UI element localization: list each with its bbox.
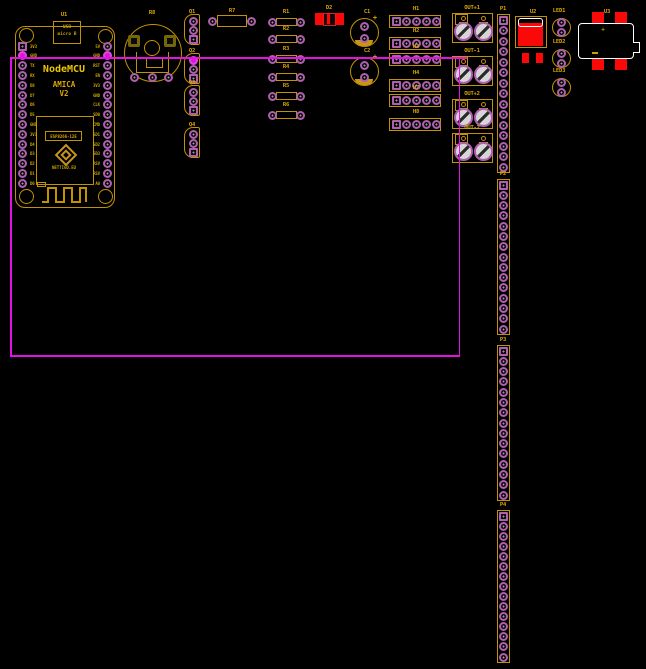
resistor-pad-R7[interactable]	[208, 17, 217, 26]
pin-strip-pad-P4[interactable]	[499, 582, 508, 591]
regulator-tab-outline	[518, 18, 543, 27]
nodemcu-pin-left-D0[interactable]	[18, 179, 27, 188]
pin-strip-pad-P1[interactable]	[499, 100, 508, 109]
resistor-ref-label-R5[interactable]: R5	[283, 83, 289, 89]
header-ref-label-H7[interactable]: H7	[413, 85, 419, 91]
nodemcu-pin-label-left-TX: TX	[30, 63, 35, 68]
terminal-ref-label-OUT-2[interactable]: OUT-2	[464, 125, 480, 131]
nodemcu-pin-right-SD0[interactable]	[103, 110, 112, 119]
pin-strip-pad-P2[interactable]	[499, 181, 508, 190]
pin-strip-ref-label-P4[interactable]: P4	[500, 502, 506, 508]
nodemcu-pin-label-right-A0: A0	[71, 181, 100, 186]
module-ref-label[interactable]: U3	[604, 9, 610, 15]
terminal-clamp-icon-OUT+2	[481, 102, 486, 107]
pin-strip-pad-P4[interactable]	[499, 572, 508, 581]
pin-strip-pad-P3[interactable]	[499, 398, 508, 407]
nodemcu-pin-label-left-3V3: 3V3	[30, 44, 37, 49]
resistor-ref-label-R4[interactable]: R4	[283, 64, 289, 70]
nodemcu-ref-label[interactable]: U1	[61, 12, 67, 18]
transistor-ref-label-Q1[interactable]: Q1	[189, 9, 195, 15]
header-pad-H1[interactable]	[392, 17, 401, 26]
pin-strip-pad-P3[interactable]	[499, 419, 508, 428]
transistor-pad-Q1[interactable]	[189, 17, 198, 26]
pin-strip-pad-P2[interactable]	[499, 304, 508, 313]
module-body-outline[interactable]	[578, 23, 634, 59]
module-polarity-mark: +	[601, 27, 605, 34]
terminal-clamp-icon-OUT-2	[481, 136, 486, 141]
regulator-ref-label[interactable]: U2	[530, 9, 536, 15]
terminal-clamp-icon-OUT+1	[481, 16, 486, 21]
nodemcu-pin-label-right-RSV: RSV	[71, 171, 100, 176]
pin-strip-pad-P4[interactable]	[499, 522, 508, 531]
nodemcu-pin-left-GND[interactable]	[18, 51, 27, 60]
transistor-pad-Q4[interactable]	[189, 130, 198, 139]
nodemcu-pin-label-left-D3: D3	[30, 151, 35, 156]
header-ref-label-H2[interactable]: H2	[413, 28, 419, 34]
transistor-ref-label-Q4[interactable]: Q4	[189, 122, 195, 128]
pin-strip-pad-P2[interactable]	[499, 325, 508, 334]
resistor-pad-R3[interactable]	[268, 55, 277, 64]
pin-strip-pad-P1[interactable]	[499, 37, 508, 46]
nodemcu-pin-left-D6[interactable]	[18, 100, 27, 109]
transistor-pad-Q4[interactable]	[189, 139, 198, 148]
led-pad-LED3[interactable]	[557, 88, 566, 97]
terminal-clamp-icon-OUT-2	[461, 136, 466, 141]
pin-strip-pad-P1[interactable]	[499, 121, 508, 130]
nodemcu-pin-right-RSV[interactable]	[103, 159, 112, 168]
transistor-ref-label-Q2[interactable]: Q2	[189, 48, 195, 54]
pin-strip-pad-P1[interactable]	[499, 47, 508, 56]
pin-strip-pad-P3[interactable]	[499, 388, 508, 397]
potentiometer-pin-pad[interactable]	[130, 73, 139, 82]
resistor-pad-R1[interactable]	[296, 18, 305, 27]
nodemcu-pin-right-5V[interactable]	[103, 42, 112, 51]
pin-strip-pad-P1[interactable]	[499, 152, 508, 161]
nodemcu-pin-label-right-CLK: CLK	[71, 102, 100, 107]
resistor-body-R4[interactable]	[276, 73, 297, 81]
terminal-screw-pad-OUT-1[interactable]	[454, 65, 473, 84]
pin-strip-pad-P1[interactable]	[499, 58, 508, 67]
nodemcu-pin-left-D1[interactable]	[18, 169, 27, 178]
nodemcu-pin-label-right-3V3: 3V3	[71, 83, 100, 88]
led-pad-LED1[interactable]	[557, 28, 566, 37]
nodemcu-pin-label-left-D2: D2	[30, 161, 35, 166]
pin-strip-pad-P3[interactable]	[499, 357, 508, 366]
terminal-screw-pad-OUT+2[interactable]	[474, 108, 493, 127]
nodemcu-pin-label-left-D7: D7	[30, 93, 35, 98]
nodemcu-pin-left-D5[interactable]	[18, 110, 27, 119]
header-pad-H4[interactable]	[402, 81, 411, 90]
header-pad-H7[interactable]	[412, 96, 421, 105]
pin-strip-pad-P1[interactable]	[499, 16, 508, 25]
nodemcu-pin-label-left-3V3: 3V3	[30, 132, 37, 137]
resistor-pad-R1[interactable]	[268, 18, 277, 27]
module-pad[interactable]	[592, 59, 604, 70]
resistor-ref-label-R6[interactable]: R6	[283, 102, 289, 108]
pin-strip-pad-P2[interactable]	[499, 201, 508, 210]
module-pad[interactable]	[592, 12, 604, 23]
resistor-pad-R7[interactable]	[247, 17, 256, 26]
resistor-pad-R6[interactable]	[296, 111, 305, 120]
nodemcu-pin-left-D2[interactable]	[18, 159, 27, 168]
module-pad[interactable]	[615, 59, 627, 70]
header-pad-H1[interactable]	[412, 17, 421, 26]
pin-strip-pad-P2[interactable]	[499, 273, 508, 282]
pin-strip-pad-P1[interactable]	[499, 26, 508, 35]
mounting-hole	[19, 28, 34, 43]
resistor-body-R1[interactable]	[276, 18, 297, 26]
terminal-ref-label-OUT+1[interactable]: OUT+1	[464, 5, 480, 11]
nodemcu-pin-right-RST[interactable]	[103, 61, 112, 70]
resistor-pad-R2[interactable]	[296, 35, 305, 44]
nodemcu-subtitle-v2: V2	[59, 89, 68, 98]
resistor-pad-R2[interactable]	[268, 35, 277, 44]
nodemcu-pin-label-right-RSV: RSV	[71, 161, 100, 166]
nodemcu-pin-left-TX[interactable]	[18, 61, 27, 70]
header-pad-H8[interactable]	[392, 120, 401, 129]
pin-strip-pad-P1[interactable]	[499, 131, 508, 140]
potentiometer-bracket-slot	[146, 57, 163, 68]
capacitor-pad-C2[interactable]	[360, 61, 369, 70]
nodemcu-pin-label-left-D0: D0	[30, 181, 35, 186]
terminal-screw-pad-OUT+2[interactable]	[454, 108, 473, 127]
nodemcu-pin-label-left-D5: D5	[30, 112, 35, 117]
pin-strip-pad-P3[interactable]	[499, 470, 508, 479]
resistor-ref-label-R2[interactable]: R2	[283, 26, 289, 32]
usb-label-line1: USB	[63, 25, 71, 30]
terminal-clamp-icon-OUT+2	[461, 102, 466, 107]
terminal-screw-pad-OUT+1[interactable]	[454, 22, 473, 41]
nodemcu-pin-left-RX[interactable]	[18, 71, 27, 80]
nodemcu-pin-label-left-GND: GND	[30, 122, 37, 127]
gnd-net-track-top[interactable]	[10, 57, 467, 59]
pin-strip-pad-P2[interactable]	[499, 222, 508, 231]
module-pad[interactable]	[615, 12, 627, 23]
led-ref-label-LED3[interactable]: LED3	[553, 68, 565, 74]
resistor-ref-label-R3[interactable]: R3	[283, 46, 289, 52]
led-pad-LED1[interactable]	[557, 18, 566, 27]
capacitor-pad-C1[interactable]	[360, 34, 369, 43]
nodemcu-pin-label-right-SD0: SD0	[71, 112, 100, 117]
nodemcu-pin-right-CMD[interactable]	[103, 120, 112, 129]
led-pad-LED3[interactable]	[557, 78, 566, 87]
pin-strip-ref-label-P2[interactable]: P2	[500, 171, 506, 177]
nodemcu-pin-label-left-D1: D1	[30, 171, 35, 176]
nodemcu-pin-right-SD1[interactable]	[103, 130, 112, 139]
terminal-clamp-icon-OUT+1	[461, 16, 466, 21]
mounting-hole	[98, 189, 113, 204]
pin-strip-pad-P1[interactable]	[499, 68, 508, 77]
potentiometer-ref-label[interactable]: R8	[149, 10, 155, 16]
nodemcu-pin-label-left-D4: D4	[30, 142, 35, 147]
potentiometer-mount-pad[interactable]	[164, 35, 176, 47]
terminal-screw-pad-OUT-2[interactable]	[474, 142, 493, 161]
nodemcu-pin-label-left-D8: D8	[30, 83, 35, 88]
nodemcu-pin-label-right-5V: 5V	[71, 44, 100, 49]
terminal-ref-label-OUT-1[interactable]: OUT-1	[464, 48, 480, 54]
capacitor-pad-C1[interactable]	[360, 22, 369, 31]
header-ref-label-H4[interactable]: H4	[413, 70, 419, 76]
resistor-pad-R6[interactable]	[268, 111, 277, 120]
header-pad-H8[interactable]	[402, 120, 411, 129]
smd-diode-pad[interactable]	[315, 13, 323, 25]
potentiometer-mount-pad[interactable]	[128, 35, 140, 47]
pin-strip-pad-P2[interactable]	[499, 232, 508, 241]
pin-strip-pad-P2[interactable]	[499, 263, 508, 272]
smd-diode-ref-label[interactable]: D2	[326, 5, 332, 11]
transistor-pad-Q1[interactable]	[189, 26, 198, 35]
module-notch	[633, 42, 640, 53]
gnd-net-track-bottom[interactable]	[10, 355, 460, 357]
header-pad-H1[interactable]	[402, 17, 411, 26]
transistor-pad-Q2[interactable]	[189, 65, 198, 74]
nodemcu-pin-right-GND[interactable]	[103, 91, 112, 100]
pin-strip-pad-P2[interactable]	[499, 253, 508, 262]
nodemcu-pin-left-3V3[interactable]	[18, 42, 27, 51]
led-pad-LED2[interactable]	[557, 49, 566, 58]
nodemcu-pin-label-right-CMD: CMD	[71, 122, 100, 127]
transistor-pad-Q3[interactable]	[189, 106, 198, 115]
resistor-pad-R4[interactable]	[296, 73, 305, 82]
nodemcu-pin-right-SD2[interactable]	[103, 140, 112, 149]
nodemcu-pin-label-left-D6: D6	[30, 102, 35, 107]
mounting-hole	[19, 189, 34, 204]
transistor-pad-Q3[interactable]	[189, 97, 198, 106]
potentiometer-pin-pad[interactable]	[148, 73, 157, 82]
nodemcu-pin-label-right-GND: GND	[71, 93, 100, 98]
header-ref-label-H3[interactable]: H3	[413, 44, 419, 50]
nodemcu-pin-label-right-SD2: SD2	[71, 142, 100, 147]
pin-strip-pad-P4[interactable]	[499, 542, 508, 551]
nodemcu-pin-left-3V3[interactable]	[18, 130, 27, 139]
header-pad-H7[interactable]	[392, 96, 401, 105]
header-ref-label-H1[interactable]: H1	[413, 6, 419, 12]
header-pad-H2[interactable]	[392, 39, 401, 48]
pcb-canvas[interactable]: U1 USB micro B NodeMCU AMICA V2 ESP8266-…	[0, 0, 646, 669]
resistor-body-R7[interactable]	[217, 15, 247, 27]
resistor-pad-R4[interactable]	[268, 73, 277, 82]
led-ref-label-LED2[interactable]: LED2	[553, 39, 565, 45]
nodemcu-pin-right-CLK[interactable]	[103, 100, 112, 109]
nodemcu-pin-right-GND[interactable]	[103, 51, 112, 60]
header-pad-H8[interactable]	[412, 120, 421, 129]
pin-strip-pad-P1[interactable]	[499, 79, 508, 88]
terminal-screw-pad-OUT-2[interactable]	[454, 142, 473, 161]
module-silk-mark	[592, 52, 598, 54]
led-pad-LED2[interactable]	[557, 59, 566, 68]
pin-strip-pad-P3[interactable]	[499, 460, 508, 469]
resistor-body-R6[interactable]	[276, 111, 297, 119]
pin-strip-pad-P3[interactable]	[499, 491, 508, 500]
nodemcu-pin-left-D7[interactable]	[18, 91, 27, 100]
terminal-ref-label-OUT+2[interactable]: OUT+2	[464, 91, 480, 97]
resistor-ref-label-R7[interactable]: R7	[229, 8, 235, 14]
resistor-pad-R5[interactable]	[296, 92, 305, 101]
nodemcu-pin-right-RSV[interactable]	[103, 169, 112, 178]
regulator-lead-pad[interactable]	[522, 53, 529, 63]
smd-diode-band	[327, 14, 330, 24]
capacitor-ref-label-C1[interactable]: C1	[364, 9, 370, 15]
regulator-lead-pad[interactable]	[536, 53, 543, 63]
terminal-screw-pad-OUT+1[interactable]	[474, 22, 493, 41]
resistor-pad-R3[interactable]	[296, 55, 305, 64]
nodemcu-pin-left-D3[interactable]	[18, 149, 27, 158]
resistor-body-R5[interactable]	[276, 92, 297, 100]
led-ref-label-LED1[interactable]: LED1	[553, 8, 565, 14]
smd-diode-pad[interactable]	[336, 13, 344, 25]
pin-strip-ref-label-P3[interactable]: P3	[500, 337, 506, 343]
nodemcu-pin-label-right-SD1: SD1	[71, 132, 100, 137]
transistor-pad-Q3[interactable]	[189, 88, 198, 97]
usb-label-line2: micro B	[58, 32, 77, 37]
nodemcu-pin-left-D4[interactable]	[18, 140, 27, 149]
pin-strip-pad-P4[interactable]	[499, 562, 508, 571]
nodemcu-pin-label-left-RX: RX	[30, 73, 35, 78]
nodemcu-pin-left-D8[interactable]	[18, 81, 27, 90]
header-pad-H2[interactable]	[402, 39, 411, 48]
nodemcu-pin-right-A0[interactable]	[103, 179, 112, 188]
header-pad-H7[interactable]	[402, 96, 411, 105]
esp-antenna-icon	[40, 184, 88, 204]
pin-strip-pad-P4[interactable]	[499, 592, 508, 601]
pin-strip-pad-P3[interactable]	[499, 439, 508, 448]
pin-strip-pad-P1[interactable]	[499, 142, 508, 151]
resistor-body-R2[interactable]	[276, 35, 297, 43]
nodemcu-pin-left-GND[interactable]	[18, 120, 27, 129]
pin-strip-pad-P3[interactable]	[499, 367, 508, 376]
nodemcu-pin-label-right-SD3: SD3	[71, 151, 100, 156]
nodemcu-pin-right-3V3[interactable]	[103, 81, 112, 90]
transistor-pad-Q4[interactable]	[189, 148, 198, 157]
terminal-screw-pad-OUT-1[interactable]	[474, 65, 493, 84]
capacitor-pad-C2[interactable]	[360, 73, 369, 82]
nodemcu-pin-label-right-EN: EN	[71, 73, 100, 78]
resistor-ref-label-R1[interactable]: R1	[283, 9, 289, 15]
mounting-hole	[98, 29, 113, 44]
pin-strip-pad-P4[interactable]	[499, 653, 508, 662]
pin-strip-ref-label-P1[interactable]: P1	[500, 6, 506, 12]
pin-strip-pad-P4[interactable]	[499, 532, 508, 541]
header-pad-H4[interactable]	[392, 81, 401, 90]
gnd-net-track-right[interactable]	[459, 57, 461, 357]
transistor-pad-Q1[interactable]	[189, 35, 198, 44]
terminal-clamp-icon-OUT-1	[481, 59, 486, 64]
terminal-clamp-icon-OUT-1	[461, 59, 466, 64]
transistor-ref-label-Q3[interactable]: Q3	[189, 80, 195, 86]
pin-strip-pad-P1[interactable]	[499, 110, 508, 119]
pin-strip-pad-P4[interactable]	[499, 552, 508, 561]
pin-strip-pad-P3[interactable]	[499, 429, 508, 438]
nodemcu-pin-right-SD3[interactable]	[103, 149, 112, 158]
potentiometer-pin-pad[interactable]	[164, 73, 173, 82]
nodemcu-pin-label-right-RST: RST	[71, 63, 100, 68]
pin-strip-pad-P2[interactable]	[499, 294, 508, 303]
header-ref-label-H8[interactable]: H8	[413, 109, 419, 115]
capacitor-ref-label-C2[interactable]: C2	[364, 48, 370, 54]
pin-strip-pad-P3[interactable]	[499, 347, 508, 356]
pin-strip-pad-P2[interactable]	[499, 191, 508, 200]
pin-strip-pad-P4[interactable]	[499, 512, 508, 521]
nodemcu-pin-right-EN[interactable]	[103, 71, 112, 80]
resistor-pad-R5[interactable]	[268, 92, 277, 101]
pin-strip-pad-P1[interactable]	[499, 89, 508, 98]
gnd-net-track-left[interactable]	[10, 57, 12, 357]
